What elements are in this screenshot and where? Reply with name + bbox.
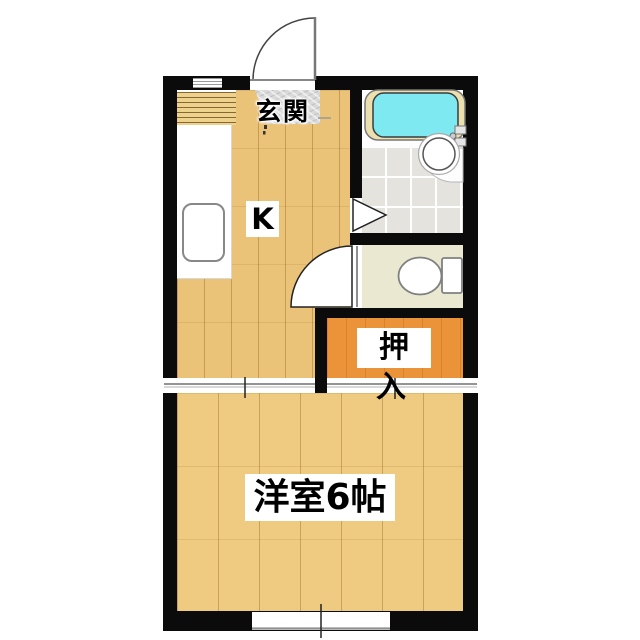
entrance-door-swing-area bbox=[253, 18, 315, 80]
floorplan-image: 玄関 K 押入 洋室6帖 bbox=[0, 0, 640, 640]
fixtures-layer bbox=[0, 0, 640, 640]
kitchen-label: K bbox=[246, 201, 279, 237]
toilet-tank bbox=[442, 258, 462, 293]
entrance-label: 玄関 bbox=[256, 92, 310, 128]
bathroom-folding-door-mark bbox=[353, 199, 386, 231]
wash-basin bbox=[423, 138, 455, 170]
closet-label: 押入 bbox=[357, 328, 431, 368]
bathtub bbox=[373, 93, 458, 137]
toilet-bowl bbox=[399, 258, 442, 295]
western-room-label: 洋室6帖 bbox=[245, 474, 395, 521]
bath-faucet bbox=[455, 126, 466, 134]
toilet-door-arc bbox=[291, 246, 352, 307]
entrance-step-mark bbox=[263, 131, 266, 135]
